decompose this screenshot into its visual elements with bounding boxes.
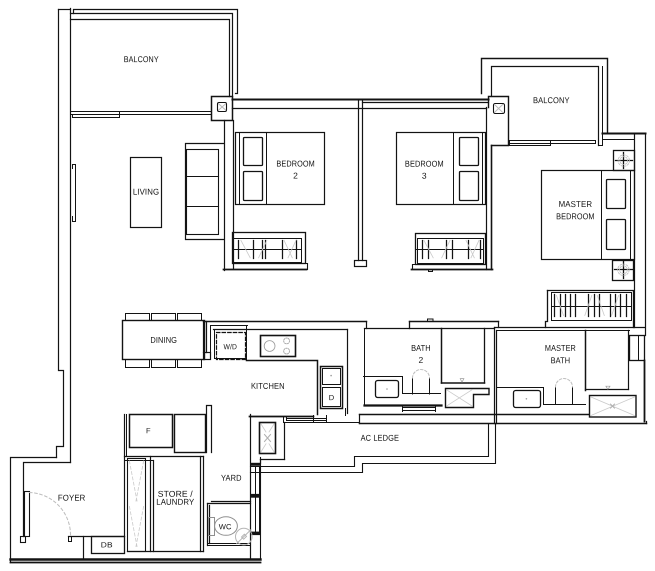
svg-text:DB: DB xyxy=(101,540,113,549)
svg-text:DINING: DINING xyxy=(150,335,177,345)
svg-text:3: 3 xyxy=(422,171,427,181)
svg-text:WC: WC xyxy=(219,522,232,531)
svg-text:LAUNDRY: LAUNDRY xyxy=(156,497,194,507)
svg-text:MASTER: MASTER xyxy=(559,199,593,209)
svg-text:AC LEDGE: AC LEDGE xyxy=(361,433,400,443)
svg-text:2: 2 xyxy=(293,170,298,180)
svg-text:BALCONY: BALCONY xyxy=(124,54,159,64)
svg-text:BEDROOM: BEDROOM xyxy=(405,159,444,169)
svg-text:YARD: YARD xyxy=(221,473,242,483)
svg-text:LIVING: LIVING xyxy=(133,187,159,197)
svg-text:BEDROOM: BEDROOM xyxy=(276,158,314,168)
svg-text:W/D: W/D xyxy=(224,342,238,351)
svg-text:KITCHEN: KITCHEN xyxy=(251,381,285,391)
svg-text:BATH: BATH xyxy=(411,343,431,353)
svg-text:F: F xyxy=(146,426,151,435)
svg-text:2: 2 xyxy=(418,355,423,365)
svg-text:BALCONY: BALCONY xyxy=(533,95,570,105)
svg-text:MASTER: MASTER xyxy=(545,343,576,353)
svg-text:BEDROOM: BEDROOM xyxy=(556,211,595,221)
svg-text:BATH: BATH xyxy=(551,355,571,365)
svg-text:FOYER: FOYER xyxy=(58,493,86,503)
svg-text:D: D xyxy=(329,393,335,402)
